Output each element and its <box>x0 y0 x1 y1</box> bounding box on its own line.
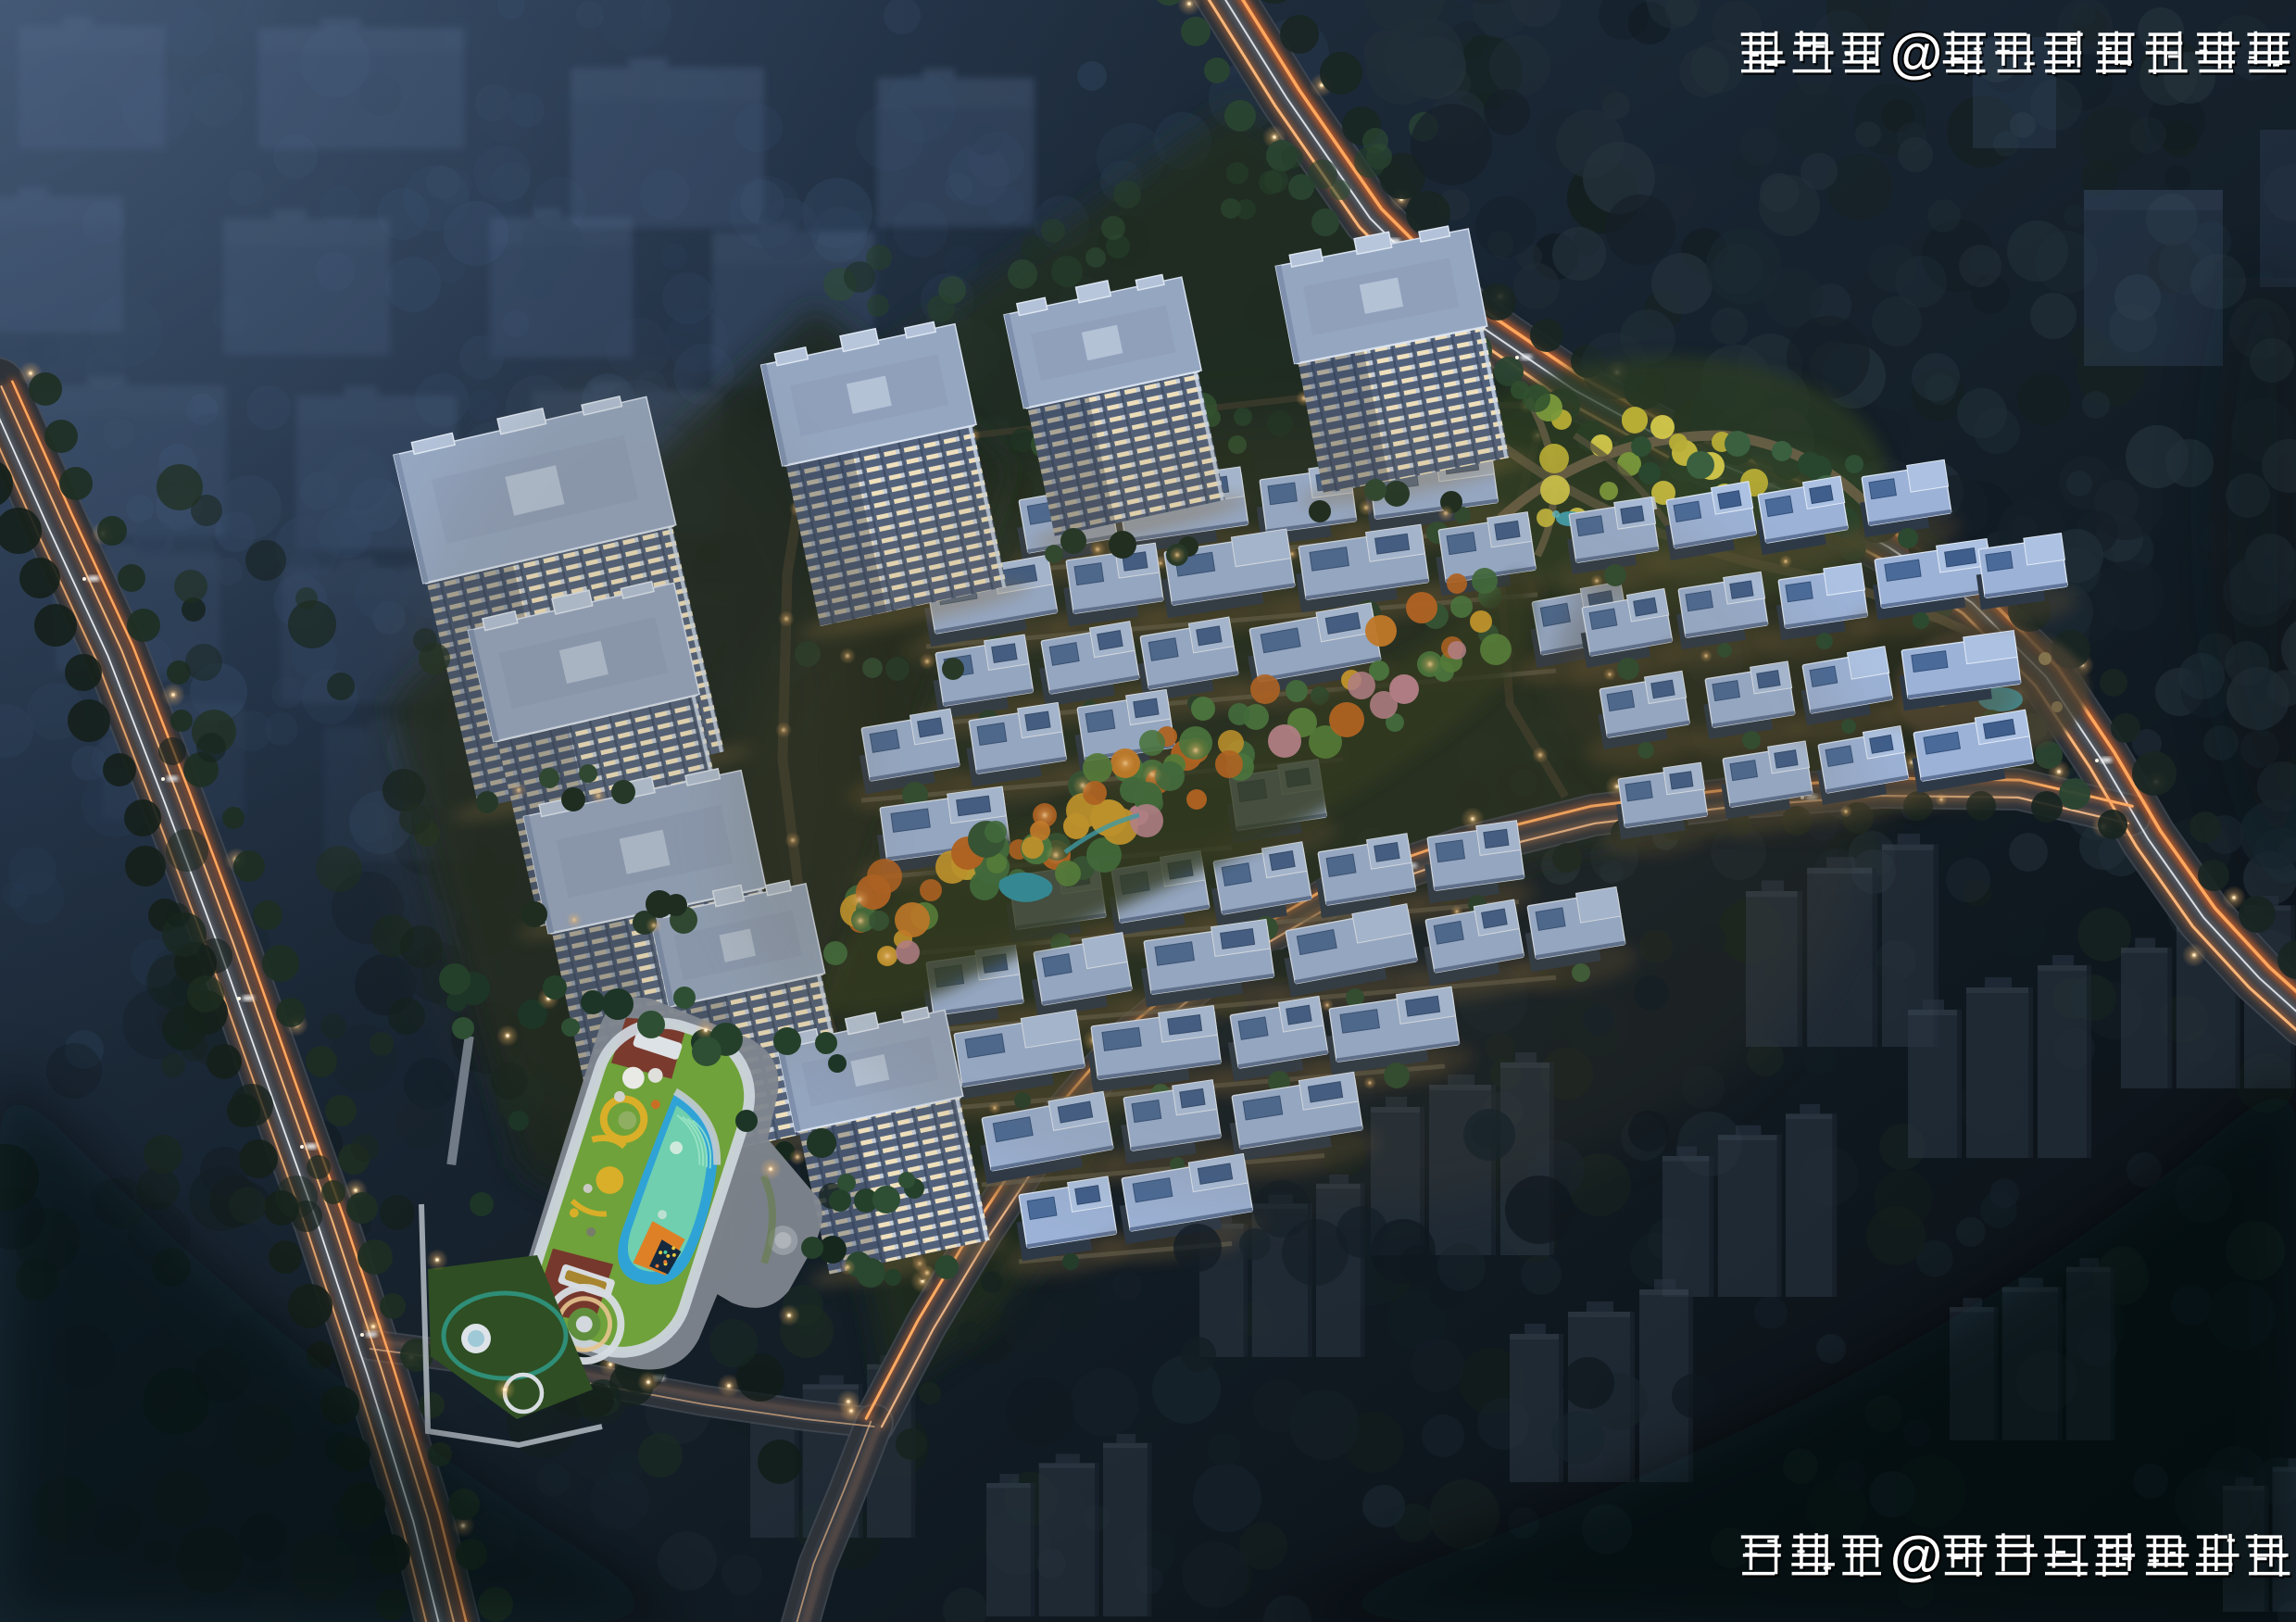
svg-text:@: @ <box>1890 23 1943 83</box>
svg-text:@: @ <box>1890 1526 1943 1586</box>
